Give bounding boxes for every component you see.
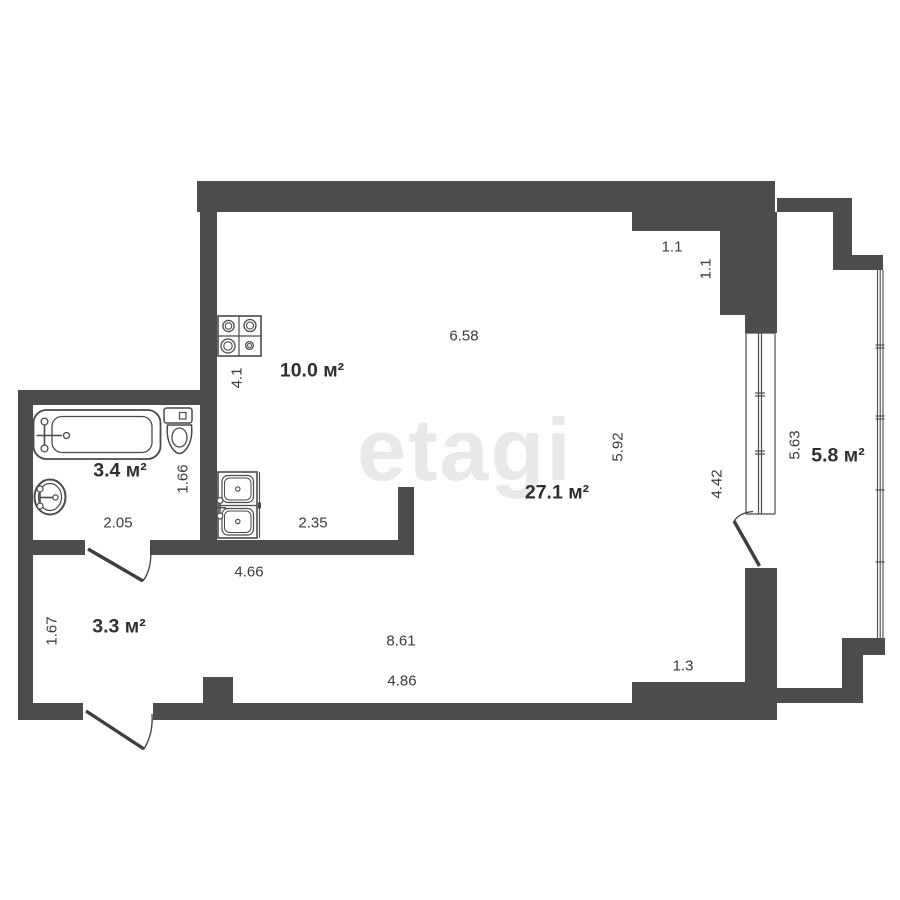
bathroom-sink-icon	[35, 480, 66, 515]
dimension-label: 4.86	[387, 673, 416, 690]
dimension-label: 1.1	[698, 259, 715, 280]
dimension-label: 8.61	[386, 633, 415, 650]
wall-segment	[200, 212, 217, 555]
dimension-label: 2.05	[103, 515, 132, 532]
wall-segment	[150, 540, 217, 555]
dimension-label: 1.67	[44, 616, 61, 645]
wall-segment	[18, 540, 85, 555]
side-window	[876, 270, 885, 638]
wall-segment	[777, 688, 863, 703]
wall-segment	[18, 405, 33, 720]
wall-segment	[833, 212, 852, 255]
wall-segment	[745, 315, 777, 333]
wall-segment	[217, 540, 414, 555]
dimension-label: 2.35	[298, 515, 327, 532]
room-label-balcony: 5.8 м²	[811, 445, 864, 468]
wall-segment	[197, 181, 775, 212]
bathtub-icon	[34, 410, 161, 459]
room-label-kitchen: 10.0 м²	[280, 360, 344, 383]
wall-segment	[632, 212, 720, 231]
dimension-label: 4.42	[709, 469, 726, 498]
room-label-living-room: 27.1 м²	[525, 482, 589, 505]
dimension-label: 1.66	[175, 464, 192, 493]
dimension-label: 1.1	[662, 239, 683, 256]
wall-segment	[777, 198, 852, 212]
wall-segment	[18, 390, 217, 405]
dimension-label: 4.1	[229, 368, 246, 389]
room-label-hallway: 3.3 м²	[92, 616, 145, 639]
dimension-label: 5.63	[787, 430, 804, 459]
kitchen-sink-icon	[215, 472, 262, 538]
wall-segment	[18, 703, 83, 720]
floor-plan: etagi	[0, 0, 900, 900]
wall-segment	[203, 677, 233, 703]
dimension-label: 5.92	[610, 432, 627, 461]
balcony-door	[734, 512, 760, 567]
stove-icon	[218, 316, 261, 356]
wall-segment	[842, 655, 863, 688]
dimension-label: 6.58	[449, 328, 478, 345]
room-label-bathroom: 3.4 м²	[93, 460, 146, 483]
dimension-label: 4.66	[234, 564, 263, 581]
floor-plan-drawing	[0, 0, 900, 900]
wall-segment	[153, 703, 632, 720]
balcony-window	[746, 333, 775, 514]
wall-segment	[842, 638, 885, 655]
wall-segment	[720, 212, 777, 315]
wall-segment	[632, 682, 777, 720]
bathroom-door	[88, 547, 151, 581]
entry-door	[86, 711, 152, 749]
wall-segment	[745, 568, 777, 682]
wall-segment	[398, 487, 414, 555]
toilet-icon	[164, 408, 192, 454]
wall-segment	[833, 255, 883, 270]
dimension-label: 1.3	[673, 658, 694, 675]
